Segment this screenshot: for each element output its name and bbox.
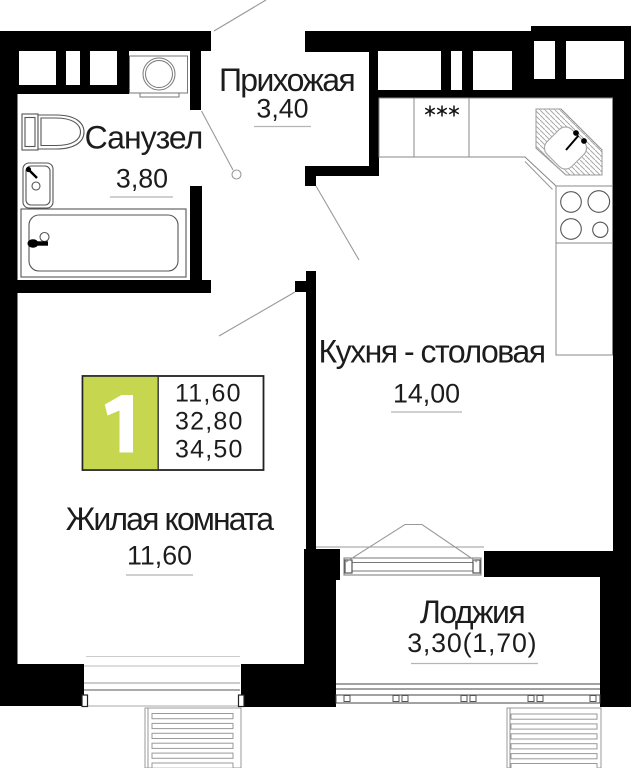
svg-text:Кухня - столовая: Кухня - столовая [318, 334, 544, 370]
svg-text:3,40: 3,40 [256, 93, 308, 123]
svg-text:3,30(1,70): 3,30(1,70) [407, 628, 537, 658]
svg-text:11,60: 11,60 [127, 541, 192, 571]
svg-text:34,50: 34,50 [175, 436, 244, 464]
svg-text:Лоджия: Лоджия [420, 594, 525, 630]
svg-text:14,00: 14,00 [393, 378, 460, 408]
svg-text:11,60: 11,60 [175, 380, 242, 408]
svg-text:3,80: 3,80 [116, 163, 168, 193]
svg-text:Санузел: Санузел [85, 120, 203, 156]
svg-text:32,80: 32,80 [175, 408, 244, 436]
svg-text:Жилая комната: Жилая комната [66, 501, 275, 537]
